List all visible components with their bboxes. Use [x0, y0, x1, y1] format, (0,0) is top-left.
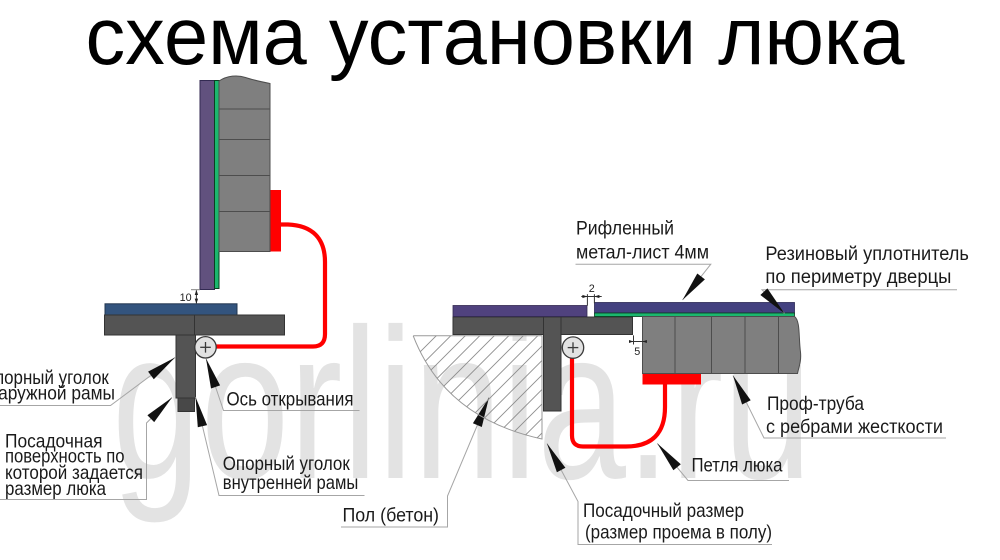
svg-text:Ось открывания: Ось открывания — [227, 389, 354, 411]
svg-text:Петля люка: Петля люка — [692, 455, 783, 477]
svg-text:Проф-труба: Проф-труба — [767, 393, 864, 415]
svg-text:Рифленный: Рифленный — [576, 218, 674, 240]
svg-text:схема установки люка: схема установки люка — [86, 0, 905, 82]
svg-text:внутренней рамы: внутренней рамы — [223, 472, 359, 494]
svg-text:10: 10 — [180, 292, 192, 304]
svg-text:по периметру дверцы: по периметру дверцы — [765, 266, 951, 288]
svg-text:2: 2 — [589, 283, 595, 295]
svg-text:с ребрами жесткости: с ребрами жесткости — [766, 416, 943, 438]
svg-text:5: 5 — [634, 346, 640, 358]
svg-text:Посадочный размер: Посадочный размер — [583, 500, 744, 522]
svg-text:наружной рамы: наружной рамы — [0, 382, 115, 404]
svg-text:метал-лист 4мм: метал-лист 4мм — [576, 242, 709, 264]
svg-text:Пол (бетон): Пол (бетон) — [343, 505, 440, 527]
svg-text:(размер проема в полу): (размер проема в полу) — [585, 522, 772, 544]
svg-text:Резиновый уплотнитель: Резиновый уплотнитель — [765, 243, 969, 265]
svg-text:размер люка: размер люка — [5, 478, 106, 500]
